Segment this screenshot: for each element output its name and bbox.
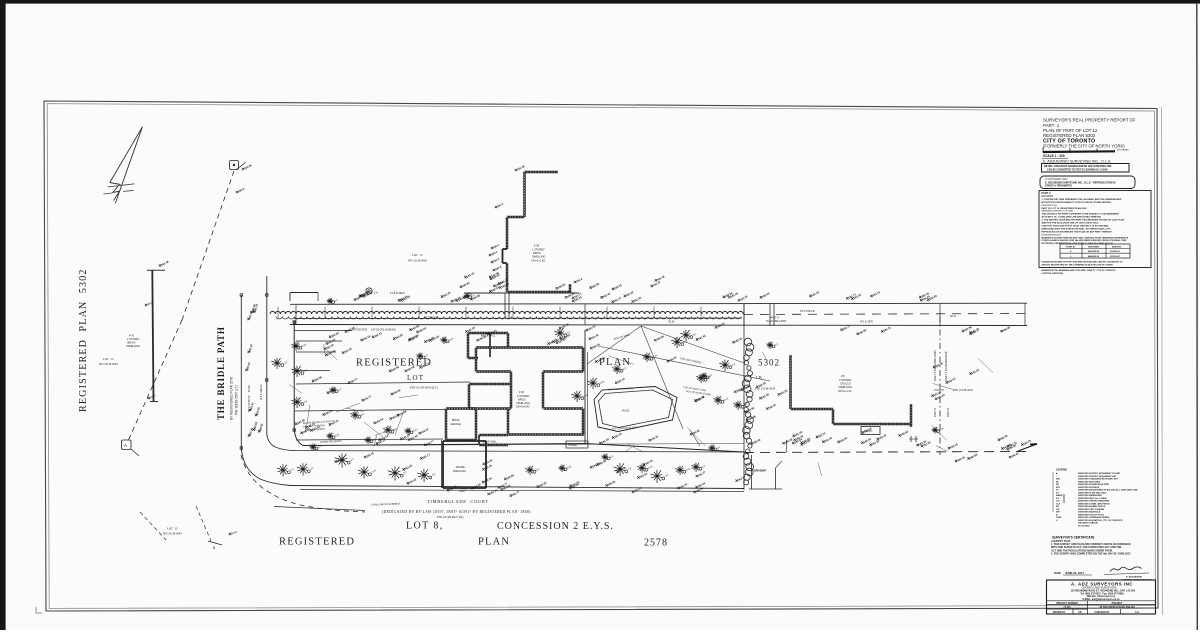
- svg-text:WIT: WIT: [1056, 487, 1061, 489]
- svg-text:(FORMERLY THE CITY OF NORTH YO: (FORMERLY THE CITY OF NORTH YORK): [1043, 143, 1125, 148]
- svg-text:REGISTERED: REGISTERED: [279, 537, 355, 548]
- svg-text:DENOTES REGISTERED PLAN 5302 A: DENOTES REGISTERED PLAN 5302 ALL DATE AN…: [1078, 489, 1138, 492]
- svg-text:DENOTES ELEVATION. CITY OF TOR: DENOTES ELEVATION. CITY OF TORONTO: [1078, 519, 1123, 522]
- svg-text:DENOTES MANHOLE: DENOTES MANHOLE: [1078, 511, 1101, 514]
- svg-text:# 8: # 8: [841, 374, 845, 378]
- svg-text:A.A: A.A: [1135, 611, 1139, 614]
- svg-text:CAUTION: THIS PLAN IS NOT VALI: CAUTION: THIS PLAN IS NOT VALID UNLESS I…: [1042, 224, 1110, 227]
- svg-text:REGISTERED PLAN 5302: REGISTERED PLAN 5302: [78, 268, 89, 412]
- svg-text:ONTARIO LAND SURVEYORS: ONTARIO LAND SURVEYORS: [1082, 587, 1117, 590]
- svg-text:DRAWN BY: DRAWN BY: [1053, 611, 1066, 614]
- svg-text:DWELLING: DWELLING: [453, 470, 466, 473]
- svg-text:4844755.84: 4844755.84: [1088, 250, 1100, 253]
- svg-text:POINTS A AND B WHOSE GRID VALU: POINTS A AND B WHOSE GRID VALUES WERE DE…: [1042, 239, 1127, 242]
- svg-text:A: A: [124, 443, 127, 448]
- svg-text:LOT 13: LOT 13: [103, 357, 114, 361]
- svg-text:# 76: # 76: [129, 334, 135, 338]
- svg-text:DESCRIPTION:: DESCRIPTION:: [1042, 205, 1058, 207]
- svg-text:315812.47: 315812.47: [1110, 255, 1121, 258]
- svg-text:MONUMENTATION:: MONUMENTATION:: [1042, 233, 1062, 236]
- svg-text:PLAN: PLAN: [478, 537, 510, 548]
- svg-text:REPRODUCE OR DISTRIBUTE THIS P: REPRODUCE OR DISTRIBUTE THIS PLAN OR ANY…: [1042, 230, 1113, 233]
- svg-text:(P1 & MEAS): (P1 & MEAS): [259, 384, 263, 400]
- svg-text:DENOTES CATCH BASIN: DENOTES CATCH BASIN: [1078, 508, 1105, 511]
- svg-text:MEAS: MEAS: [1056, 494, 1063, 497]
- svg-text:DENOTES ROUND IRON PIPE: DENOTES ROUND IRON PIPE: [1078, 484, 1109, 486]
- svg-text:2 STOREY: 2 STOREY: [517, 394, 530, 398]
- svg-text:PIN 10138-0038: PIN 10138-0038: [408, 260, 427, 263]
- svg-text:PROJECT NUMBER: PROJECT NUMBER: [1056, 603, 1078, 605]
- svg-text:OU: OU: [1056, 501, 1060, 503]
- svg-text:PIN 10138-0035: PIN 10138-0035: [953, 388, 974, 392]
- svg-text:PART 2: PART 2: [1042, 191, 1052, 195]
- svg-text:DENOTES INST. No. 123456: DENOTES INST. No. 123456: [1078, 497, 1107, 500]
- svg-text:PLAN 66R-12597: PLAN 66R-12597: [766, 319, 787, 323]
- svg-text:© COPYRIGHT 2017: © COPYRIGHT 2017: [1045, 178, 1068, 181]
- svg-text:STUCCO: STUCCO: [840, 382, 851, 386]
- svg-text:NO=2+1.44: NO=2+1.44: [838, 389, 852, 393]
- svg-text:315654.21: 315654.21: [1110, 250, 1121, 253]
- svg-text:6.18 (P1&M): 6.18 (P1&M): [390, 291, 405, 295]
- svg-text:2. THE SURVEY WAS COMPLETED ON: 2. THE SURVEY WAS COMPLETED ON THE 9th D…: [1051, 552, 1132, 555]
- svg-text:1 STOREY: 1 STOREY: [127, 337, 140, 341]
- svg-text:LOT: LOT: [407, 374, 424, 382]
- svg-text:THE BRIDLE PATH: THE BRIDLE PATH: [216, 326, 226, 420]
- svg-text:HEDGE: HEDGE: [569, 444, 578, 447]
- svg-text:DENOTES ORIGIN UNKNOWN: DENOTES ORIGIN UNKNOWN: [1078, 501, 1110, 503]
- svg-text:⊕: ⊕: [1056, 513, 1058, 516]
- svg-text:CB: CB: [1056, 509, 1060, 511]
- svg-text:5302: 5302: [758, 358, 780, 368]
- svg-text:2. THE RESTRICTIONS AND PROPER: 2. THE RESTRICTIONS AND PROPERTY BOUNDAR…: [1042, 219, 1125, 222]
- svg-text:No 02-0816: No 02-0816: [1078, 525, 1090, 527]
- svg-text:NO=2+8.82: NO=2+8.82: [516, 405, 530, 409]
- svg-text:ARE FOR THE EXCLUSIVE USE OF O: ARE FOR THE EXCLUSIVE USE OF OUR CLIENT …: [1042, 222, 1100, 225]
- svg-text:CHECKED BY: CHECKED BY: [1094, 612, 1110, 614]
- svg-text:N73°20'40"E 147.00 (P1 & M: N73°20'40"E 147.00 (P1 & MEAS): [352, 328, 396, 332]
- svg-text:PROJECT: PROJECT: [1112, 603, 1123, 605]
- svg-text:CONTROL NETWORK: CONTROL NETWORK: [1042, 273, 1064, 275]
- svg-text:DISTANCES SHOWN ON THIS PLAN A: DISTANCES SHOWN ON THIS PLAN ARE GROUND …: [1042, 261, 1123, 264]
- svg-text:PIN 10128-0027 (R): PIN 10128-0027 (R): [437, 515, 463, 519]
- svg-text:DENOTES BOARD FENCE: DENOTES BOARD FENCE: [1078, 505, 1106, 508]
- svg-text:BEARINGS SHOWN HEREON ARE GRID: BEARINGS SHOWN HEREON ARE GRID, DERIVED …: [1042, 236, 1129, 239]
- svg-text:BRICK: BRICK: [128, 341, 136, 345]
- svg-text:DWELLING: DWELLING: [532, 255, 546, 259]
- svg-text:DWELLING: DWELLING: [517, 401, 531, 405]
- svg-text:THIS SUBJECT PROPERTY APPEARS: THIS SUBJECT PROPERTY APPEARS TO BE SUBJ…: [1042, 213, 1120, 216]
- svg-text:EMBOSSED WITH THE SURVEYOR SEA: EMBOSSED WITH THE SURVEYOR SEAL. NO PERS…: [1042, 227, 1112, 230]
- svg-text:NETWORK) OBSERVATIONS, UTM ZON: NETWORK) OBSERVATIONS, UTM ZONE 17, NAD …: [1042, 242, 1114, 245]
- svg-text:AS IN INST. No. 123456 (SEE LI: AS IN INST. No. 123456 (SEE LINE AND DET…: [1042, 216, 1102, 219]
- svg-text:NO=2+1.82: NO=2+1.82: [532, 258, 546, 262]
- svg-text:# 40: # 40: [519, 390, 525, 394]
- svg-text:PIN 10138-0049: PIN 10138-0049: [163, 533, 182, 536]
- svg-text:LOT 13: LOT 13: [167, 527, 178, 531]
- svg-text:PART OF LOT 12, REGISTERED PLA: PART OF LOT 12, REGISTERED PLAN 5302: [1042, 207, 1088, 210]
- svg-text:SB: SB: [1078, 612, 1082, 614]
- svg-text:Website: adzsurveyors.ca: Website: adzsurveyors.ca: [1087, 595, 1116, 598]
- svg-text:N73°24'10"E: N73°24'10"E: [800, 309, 815, 313]
- svg-text:BRICK: BRICK: [533, 251, 541, 255]
- svg-text:LOT 8,: LOT 8,: [406, 521, 444, 532]
- svg-text:SHED: SHED: [459, 491, 465, 493]
- svg-text:BEARING NOTE: BEARINGS ARE UTM: BEARING NOTE: BEARINGS ARE UTM GRID, ZON…: [1042, 269, 1116, 272]
- svg-text:GARAGE: GARAGE: [450, 423, 461, 426]
- svg-text:PART 1 PLAN 66R-9149: PART 1 PLAN 66R-9149: [944, 351, 948, 381]
- svg-text:DENOTES SURVEY MONUMENT SET: DENOTES SURVEY MONUMENT SET: [1078, 476, 1117, 478]
- svg-text:TIMBERGLADE COURT: TIMBERGLADE COURT: [427, 499, 489, 504]
- svg-text:Tel: (905) 237-8221 Fax: (41: Tel: (905) 237-8221 Fax: (416) 477-8965: [1080, 592, 1124, 595]
- svg-text:SIB: SIB: [1056, 479, 1060, 481]
- svg-text:1 STOREY: 1 STOREY: [532, 247, 545, 251]
- svg-text:NORTHING: NORTHING: [1088, 246, 1099, 248]
- svg-text:DENOTES SURVEY MONUMENT FOUND: DENOTES SURVEY MONUMENT FOUND: [1078, 473, 1120, 475]
- svg-text:PIN 10138-2537 (LT): PIN 10138-2537 (LT): [235, 385, 239, 415]
- svg-text:2578: 2578: [644, 538, 668, 549]
- svg-text:LEGEND: LEGEND: [1056, 468, 1067, 472]
- svg-text:SCALE 1 : 300: SCALE 1 : 300: [1043, 154, 1065, 158]
- svg-text:N73°18'30"E: N73°18'30"E: [424, 315, 439, 319]
- svg-text:DENOTES PLAN 66R-12597: DENOTES PLAN 66R-12597: [1078, 491, 1107, 494]
- svg-text:17-304: 17-304: [1063, 606, 1071, 609]
- svg-text:DENOTES UTILITY POLE: DENOTES UTILITY POLE: [1078, 514, 1105, 516]
- svg-text:RP: RP: [1056, 484, 1060, 486]
- svg-text:E. ADZIJEWSKI: E. ADZIJEWSKI: [1126, 576, 1142, 579]
- svg-text:PART 4: PART 4: [946, 407, 950, 417]
- svg-text:RECORDS: RECORDS: [1042, 196, 1054, 198]
- svg-text:35.36: 35.36: [668, 320, 675, 324]
- svg-text:EASEMENTS/RIGHTS-OF-WAY:: EASEMENTS/RIGHTS-OF-WAY:: [1042, 210, 1074, 213]
- svg-text:82.27: 82.27: [950, 314, 957, 318]
- svg-text:CLF: CLF: [1056, 503, 1061, 505]
- svg-text:DWELLING: DWELLING: [839, 385, 853, 389]
- svg-text:E. ADZIJEWSKI SURVEYING INC.,: E. ADZIJEWSKI SURVEYING INC., O.L.S.: [1043, 159, 1111, 163]
- svg-text:OHW: OHW: [1056, 517, 1062, 519]
- svg-text:GRID BY MULTIPLYING BY THE COM: GRID BY MULTIPLYING BY THE COMBINED SCAL…: [1042, 264, 1114, 267]
- svg-text:DENOTES IRON BAR: DENOTES IRON BAR: [1078, 480, 1100, 483]
- svg-text:FRAME: FRAME: [456, 466, 465, 469]
- svg-text:CONCESSION 2 E.Y.S.: CONCESSION 2 E.Y.S.: [497, 521, 614, 532]
- svg-text:10 metres: 10 metres: [1117, 148, 1129, 152]
- svg-text:POINT ID: POINT ID: [1066, 246, 1076, 248]
- svg-text:POOL: POOL: [622, 409, 630, 413]
- svg-text:BY REGISTERED PLAN 2578: BY REGISTERED PLAN 2578: [230, 377, 234, 420]
- svg-text:DENOTES STANDARD IRON BAR, WIT: DENOTES STANDARD IRON BAR, WIT: [1078, 478, 1119, 481]
- svg-text:PIN 10138-0050 (LT): PIN 10138-0050 (LT): [410, 386, 438, 390]
- svg-text:DENOTES OVERHEAD WIRES: DENOTES OVERHEAD WIRES: [1078, 516, 1110, 519]
- svg-text:ACCEPTS NO RESPONSIBILITY FOR: ACCEPTS NO RESPONSIBILITY FOR ITS USE BY…: [1042, 201, 1112, 204]
- svg-text:PIN 10138-0048: PIN 10138-0048: [99, 363, 118, 366]
- svg-text:BRICK: BRICK: [518, 397, 526, 401]
- svg-text:MH: MH: [1056, 512, 1060, 514]
- svg-text:PART 3: PART 3: [933, 407, 937, 417]
- svg-text:(P1 & SET): (P1 & SET): [860, 320, 873, 324]
- svg-text:METRIC: DISTANCES SHOWN HEREON: METRIC: DISTANCES SHOWN HEREON ARE IN ME…: [1044, 165, 1112, 168]
- svg-text:DRIVEWAY: DRIVEWAY: [754, 470, 767, 473]
- svg-text:STRICTLY PROHIBITED: STRICTLY PROHIBITED: [1045, 184, 1072, 187]
- svg-text:E-MAIL: adz@adzsurveyors.on.ca: E-MAIL: adz@adzsurveyors.on.ca: [1083, 598, 1121, 601]
- svg-text:150 RICHMOND ROAD ST. RICHMON: 150 RICHMOND ROAD ST. RICHMOND HILL, ONT…: [1071, 589, 1136, 592]
- svg-text:DWELLING: DWELLING: [127, 344, 141, 348]
- svg-text:DENOTES CHAIN LINK FENCE: DENOTES CHAIN LINK FENCE: [1078, 502, 1110, 505]
- svg-text:✕: ✕: [1056, 519, 1058, 522]
- svg-text:LOT 15: LOT 15: [412, 253, 423, 257]
- svg-text:GEODETIC DATUM: GEODETIC DATUM: [1078, 522, 1098, 525]
- svg-text:DATE: DATE: [1054, 571, 1061, 575]
- svg-text:REGISTERED PLAN 5302: REGISTERED PLAN 5302: [1043, 133, 1096, 138]
- svg-text:PART 4: PART 4: [770, 316, 779, 320]
- svg-text:2 STOREY: 2 STOREY: [839, 378, 852, 382]
- svg-text:48 THE BRIDLE PATH (DR-49): 48 THE BRIDLE PATH (DR-49): [1099, 606, 1134, 609]
- svg-text:1. THIS REPORT WAS PREPARED FO: 1. THIS REPORT WAS PREPARED FOR LACHMAN,…: [1042, 198, 1122, 201]
- svg-text:DENOTES WITNESS: DENOTES WITNESS: [1078, 487, 1100, 489]
- svg-text:BRICK: BRICK: [452, 419, 460, 422]
- svg-text:EASTING: EASTING: [1112, 245, 1122, 248]
- svg-text:SURVEYOR'S CERTIFICATE: SURVEYOR'S CERTIFICATE: [1052, 536, 1094, 540]
- svg-text:# 38: # 38: [534, 244, 540, 248]
- svg-text:4844392.55: 4844392.55: [1088, 255, 1100, 258]
- svg-text:Cb: Cb: [374, 291, 378, 295]
- svg-text:CAN BE CONVERTED TO FEET BY DI: CAN BE CONVERTED TO FEET BY DIVIDING BY …: [1047, 168, 1108, 171]
- svg-text:DENOTES MEASURED: DENOTES MEASURED: [1078, 494, 1102, 497]
- svg-text:SURVEYOR'S REAL PROPERTY REPOR: SURVEYOR'S REAL PROPERTY REPORT OF: [1043, 118, 1136, 123]
- svg-text:JUNE 23, 2017: JUNE 23, 2017: [1065, 571, 1085, 575]
